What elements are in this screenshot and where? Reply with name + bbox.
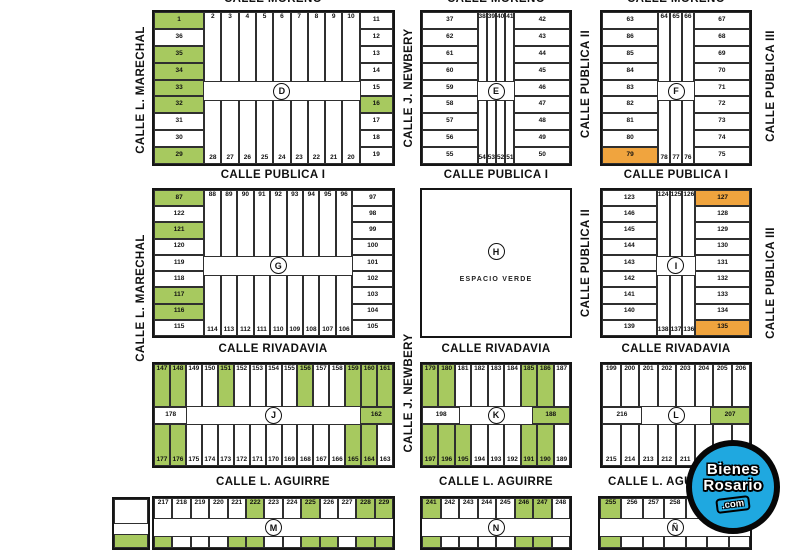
lot-number: 5 [263,14,267,21]
lot-140[interactable]: 140 [602,304,657,320]
lot-61[interactable]: 61 [422,46,478,63]
lot-243[interactable]: 243 [459,498,478,519]
lot-5[interactable]: 5 [256,12,273,82]
lot-78[interactable]: 78 [658,100,670,164]
lot-8[interactable]: 8 [308,12,325,82]
lot-255[interactable]: 255 [600,498,621,519]
lot-165[interactable]: 165 [345,424,361,467]
lot-65[interactable]: 65 [670,12,682,82]
lot-number: 164 [364,457,375,464]
lot-242[interactable]: 242 [441,498,460,519]
lot-parcel[interactable] [338,536,356,548]
lot-156[interactable]: 156 [297,364,313,407]
lot-parcel[interactable] [356,536,374,548]
lot-197[interactable]: 197 [422,424,438,467]
lot-58[interactable]: 58 [422,96,478,113]
lot-32[interactable]: 32 [154,96,204,113]
lot-112[interactable]: 112 [237,275,253,336]
lot-247[interactable]: 247 [533,498,552,519]
lot-parcel[interactable] [320,536,338,548]
lot-37[interactable]: 37 [422,12,478,29]
lot-number: 112 [240,327,251,334]
lot-185[interactable]: 185 [521,364,537,407]
lot-191[interactable]: 191 [521,424,537,467]
lot-11[interactable]: 11 [360,12,393,29]
lot-number: 154 [268,366,279,373]
lot-182[interactable]: 182 [471,364,487,407]
lot-147[interactable]: 147 [154,364,170,407]
lot-30[interactable]: 30 [154,130,204,147]
lot-92[interactable]: 92 [270,190,286,257]
lot-176[interactable]: 176 [170,424,186,467]
lot-203[interactable]: 203 [676,364,695,407]
lot-106[interactable]: 106 [336,275,352,336]
lot-166[interactable]: 166 [329,424,345,467]
lot-169[interactable]: 169 [282,424,298,467]
lot-21[interactable]: 21 [325,100,342,164]
block-bottom-row: 282726252423222120 [204,100,359,164]
lot-200[interactable]: 200 [621,364,640,407]
lot-96[interactable]: 96 [336,190,352,257]
lot-number: 110 [273,327,284,334]
lot-39[interactable]: 39 [487,12,496,82]
lot-128[interactable]: 128 [695,206,750,222]
lot-number: 186 [540,366,551,373]
lot-parcel[interactable] [621,536,642,548]
lot-115[interactable]: 115 [154,320,204,336]
lot-257[interactable]: 257 [643,498,664,519]
lot-number: 160 [364,366,375,373]
lot-31[interactable]: 31 [154,113,204,130]
lot-40[interactable]: 40 [496,12,505,82]
lot-parcel[interactable] [686,536,707,548]
lot-45[interactable]: 45 [514,63,570,80]
lot-114[interactable]: 114 [204,275,220,336]
lot-145[interactable]: 145 [602,222,657,238]
lot-parcel[interactable] [478,536,497,548]
lot-116[interactable]: 116 [154,304,204,320]
lot-parcel[interactable] [707,536,728,548]
lot-124[interactable]: 124 [657,190,670,257]
lot-12[interactable]: 12 [360,29,393,46]
lot-56[interactable]: 56 [422,130,478,147]
lot-198[interactable]: 198 [422,407,460,424]
lot-parcel[interactable] [664,536,685,548]
lot-244[interactable]: 244 [478,498,497,519]
lot-67[interactable]: 67 [694,12,750,29]
lot-10[interactable]: 10 [342,12,359,82]
lot-129[interactable]: 129 [695,222,750,238]
lot-25[interactable]: 25 [256,100,273,164]
lot-199[interactable]: 199 [602,364,621,407]
lot-196[interactable]: 196 [438,424,454,467]
lot-parcel[interactable] [422,536,441,548]
lot-4[interactable]: 4 [239,12,256,82]
lot-35[interactable]: 35 [154,46,204,63]
lot-71[interactable]: 71 [694,80,750,97]
lot-206[interactable]: 206 [732,364,751,407]
lot-parcel[interactable] [228,536,246,548]
lot-195[interactable]: 195 [455,424,471,467]
lot-123[interactable]: 123 [602,190,657,206]
lot-parcel[interactable] [600,536,621,548]
lot-number: 214 [624,457,635,464]
lot-157[interactable]: 157 [313,364,329,407]
lot-186[interactable]: 186 [537,364,553,407]
lot-111[interactable]: 111 [254,275,270,336]
lot-179[interactable]: 179 [422,364,438,407]
lot-76[interactable]: 76 [682,100,694,164]
lot-248[interactable]: 248 [552,498,571,519]
lot-number: 121 [174,227,185,234]
lot-parcel[interactable] [114,499,148,524]
lot-83[interactable]: 83 [602,80,658,97]
lot-215[interactable]: 215 [602,424,621,467]
lot-135[interactable]: 135 [695,320,750,336]
lot-parcel[interactable] [154,536,172,548]
lot-223[interactable]: 223 [264,498,282,519]
lot-parcel[interactable] [209,536,227,548]
lot-189[interactable]: 189 [554,424,570,467]
lot-113[interactable]: 113 [221,275,237,336]
lot-29[interactable]: 29 [154,147,204,164]
lot-102[interactable]: 102 [352,271,393,287]
lot-125[interactable]: 125 [670,190,683,257]
lot-parcel[interactable] [191,536,209,548]
lot-143[interactable]: 143 [602,255,657,271]
lot-24[interactable]: 24 [273,100,290,164]
lot-63[interactable]: 63 [602,12,658,29]
lot-94[interactable]: 94 [303,190,319,257]
lot-number: 124 [658,192,669,199]
lot-28[interactable]: 28 [204,100,221,164]
lot-216[interactable]: 216 [602,407,642,424]
lot-6[interactable]: 6 [273,12,290,82]
lot-221[interactable]: 221 [228,498,246,519]
lot-204[interactable]: 204 [695,364,714,407]
lot-217[interactable]: 217 [154,498,172,519]
lot-2[interactable]: 2 [204,12,221,82]
lot-159[interactable]: 159 [345,364,361,407]
lot-108[interactable]: 108 [303,275,319,336]
lot-93[interactable]: 93 [287,190,303,257]
lot-44[interactable]: 44 [514,46,570,63]
lot-105[interactable]: 105 [352,320,393,336]
lot-parcel[interactable] [496,536,515,548]
lot-parcel[interactable] [114,534,148,548]
lot-118[interactable]: 118 [154,271,204,287]
lot-142[interactable]: 142 [602,271,657,287]
lot-121[interactable]: 121 [154,222,204,238]
lot-207[interactable]: 207 [710,407,750,424]
lot-171[interactable]: 171 [250,424,266,467]
lot-127[interactable]: 127 [695,190,750,206]
lot-95[interactable]: 95 [319,190,335,257]
lot-13[interactable]: 13 [360,46,393,63]
lot-178[interactable]: 178 [154,407,187,424]
lot-84[interactable]: 84 [602,63,658,80]
lot-62[interactable]: 62 [422,29,478,46]
lot-154[interactable]: 154 [266,364,282,407]
lot-122[interactable]: 122 [154,206,204,222]
lot-137[interactable]: 137 [670,275,683,336]
lot-parcel[interactable] [283,536,301,548]
lot-74[interactable]: 74 [694,130,750,147]
lot-164[interactable]: 164 [361,424,377,467]
lot-194[interactable]: 194 [471,424,487,467]
lot-parcel[interactable] [301,536,319,548]
lot-219[interactable]: 219 [191,498,209,519]
lot-141[interactable]: 141 [602,287,657,303]
lot-number: 20 [347,155,354,162]
lot-parcel[interactable] [264,536,282,548]
lot-88[interactable]: 88 [204,190,220,257]
lot-192[interactable]: 192 [504,424,520,467]
lot-59[interactable]: 59 [422,80,478,97]
lot-152[interactable]: 152 [234,364,250,407]
lot-number: 123 [624,195,635,202]
lot-parcel[interactable] [515,536,534,548]
lot-172[interactable]: 172 [234,424,250,467]
lot-23[interactable]: 23 [291,100,308,164]
lot-82[interactable]: 82 [602,96,658,113]
lot-64[interactable]: 64 [658,12,670,82]
lot-7[interactable]: 7 [291,12,308,82]
lot-51[interactable]: 51 [505,100,514,164]
lot-99[interactable]: 99 [352,222,393,238]
lot-150[interactable]: 150 [202,364,218,407]
lot-3[interactable]: 3 [221,12,238,82]
lot-148[interactable]: 148 [170,364,186,407]
lot-14[interactable]: 14 [360,63,393,80]
lot-131[interactable]: 131 [695,255,750,271]
lot-155[interactable]: 155 [282,364,298,407]
lot-151[interactable]: 151 [218,364,234,407]
lot-86[interactable]: 86 [602,29,658,46]
lot-144[interactable]: 144 [602,239,657,255]
lot-number: 204 [698,366,709,373]
lot-89[interactable]: 89 [221,190,237,257]
lot-81[interactable]: 81 [602,113,658,130]
lot-19[interactable]: 19 [360,147,393,164]
lot-227[interactable]: 227 [338,498,356,519]
lot-55[interactable]: 55 [422,147,478,164]
lot-149[interactable]: 149 [186,364,202,407]
lot-number: 105 [367,324,378,331]
lot-69[interactable]: 69 [694,46,750,63]
lot-number: 42 [539,17,546,24]
lot-188[interactable]: 188 [532,407,570,424]
lot-226[interactable]: 226 [320,498,338,519]
lot-109[interactable]: 109 [287,275,303,336]
lot-79[interactable]: 79 [602,147,658,164]
street-label: CALLE L. MARECHAL [135,234,147,362]
lot-97[interactable]: 97 [352,190,393,206]
lot-161[interactable]: 161 [377,364,393,407]
lot-202[interactable]: 202 [658,364,677,407]
lot-90[interactable]: 90 [237,190,253,257]
lot-33[interactable]: 33 [154,80,204,97]
lot-213[interactable]: 213 [639,424,658,467]
lot-201[interactable]: 201 [639,364,658,407]
lot-256[interactable]: 256 [621,498,642,519]
lot-170[interactable]: 170 [266,424,282,467]
lot-126[interactable]: 126 [682,190,695,257]
lot-22[interactable]: 22 [308,100,325,164]
lot-77[interactable]: 77 [670,100,682,164]
lot-120[interactable]: 120 [154,239,204,255]
lot-70[interactable]: 70 [694,63,750,80]
block-M: 217218219220221222223224225226227228229M [152,496,395,550]
lot-119[interactable]: 119 [154,255,204,271]
lot-211[interactable]: 211 [676,424,695,467]
lot-parcel[interactable] [533,536,552,548]
lot-174[interactable]: 174 [202,424,218,467]
lot-number: 10 [347,14,354,21]
lot-41[interactable]: 41 [505,12,514,82]
lot-parcel[interactable] [459,536,478,548]
lot-1[interactable]: 1 [154,12,204,29]
lot-73[interactable]: 73 [694,113,750,130]
lot-133[interactable]: 133 [695,287,750,303]
lot-91[interactable]: 91 [254,190,270,257]
lot-130[interactable]: 130 [695,239,750,255]
lot-18[interactable]: 18 [360,130,393,147]
lot-98[interactable]: 98 [352,206,393,222]
lot-number: 213 [643,457,654,464]
lot-146[interactable]: 146 [602,206,657,222]
lot-60[interactable]: 60 [422,63,478,80]
lot-104[interactable]: 104 [352,304,393,320]
lot-number: 103 [367,292,378,299]
bienesrosario-logo: Bienes Rosario .com [686,440,780,534]
lot-193[interactable]: 193 [488,424,504,467]
lot-162[interactable]: 162 [360,407,393,424]
lot-181[interactable]: 181 [455,364,471,407]
lot-number: 257 [648,500,659,507]
lot-163[interactable]: 163 [377,424,393,467]
lot-15[interactable]: 15 [360,80,393,97]
lot-245[interactable]: 245 [496,498,515,519]
lot-parcel[interactable] [643,536,664,548]
lot-183[interactable]: 183 [488,364,504,407]
lot-168[interactable]: 168 [297,424,313,467]
lot-225[interactable]: 225 [301,498,319,519]
lot-87[interactable]: 87 [154,190,204,206]
lot-190[interactable]: 190 [537,424,553,467]
lot-246[interactable]: 246 [515,498,534,519]
lot-parcel[interactable] [441,536,460,548]
lot-43[interactable]: 43 [514,29,570,46]
lot-49[interactable]: 49 [514,130,570,147]
lot-number: 50 [539,152,546,159]
lot-107[interactable]: 107 [319,275,335,336]
lot-175[interactable]: 175 [186,424,202,467]
lot-parcel[interactable] [552,536,571,548]
lot-parcel[interactable] [172,536,190,548]
lot-number: 90 [242,192,249,199]
lot-36[interactable]: 36 [154,29,204,46]
lot-20[interactable]: 20 [342,100,359,164]
lot-214[interactable]: 214 [621,424,640,467]
lot-52[interactable]: 52 [496,100,505,164]
lot-54[interactable]: 54 [478,100,487,164]
lot-187[interactable]: 187 [554,364,570,407]
lot-228[interactable]: 228 [356,498,374,519]
lot-42[interactable]: 42 [514,12,570,29]
lot-184[interactable]: 184 [504,364,520,407]
lot-180[interactable]: 180 [438,364,454,407]
lot-224[interactable]: 224 [283,498,301,519]
lot-66[interactable]: 66 [682,12,694,82]
lot-26[interactable]: 26 [239,100,256,164]
lot-160[interactable]: 160 [361,364,377,407]
lot-80[interactable]: 80 [602,130,658,147]
lot-parcel[interactable] [729,536,750,548]
lot-16[interactable]: 16 [360,96,393,113]
lot-222[interactable]: 222 [246,498,264,519]
block-J: 1471481491501511521531541551561571581591… [152,362,395,468]
lot-167[interactable]: 167 [313,424,329,467]
lot-72[interactable]: 72 [694,96,750,113]
lot-134[interactable]: 134 [695,304,750,320]
lot-9[interactable]: 9 [325,12,342,82]
lot-50[interactable]: 50 [514,147,570,164]
lot-number: 8 [315,14,319,21]
lot-139[interactable]: 139 [602,320,657,336]
lot-101[interactable]: 101 [352,255,393,271]
lot-218[interactable]: 218 [172,498,190,519]
lot-number: 111 [257,327,267,334]
lot-110[interactable]: 110 [270,275,286,336]
lot-85[interactable]: 85 [602,46,658,63]
lot-number: 21 [330,155,337,162]
lot-177[interactable]: 177 [154,424,170,467]
lot-number: 12 [373,34,380,41]
lot-17[interactable]: 17 [360,113,393,130]
lot-136[interactable]: 136 [682,275,695,336]
lot-117[interactable]: 117 [154,287,204,303]
lot-47[interactable]: 47 [514,96,570,113]
lot-34[interactable]: 34 [154,63,204,80]
lot-48[interactable]: 48 [514,113,570,130]
lot-173[interactable]: 173 [218,424,234,467]
lot-220[interactable]: 220 [209,498,227,519]
lot-212[interactable]: 212 [658,424,677,467]
lot-46[interactable]: 46 [514,80,570,97]
lot-38[interactable]: 38 [478,12,487,82]
lot-241[interactable]: 241 [422,498,441,519]
block-middle: 178J162 [154,407,393,424]
street-label: CALLE MORENO [447,0,545,5]
lot-153[interactable]: 153 [250,364,266,407]
lot-53[interactable]: 53 [487,100,496,164]
lot-138[interactable]: 138 [657,275,670,336]
lot-205[interactable]: 205 [713,364,732,407]
lot-75[interactable]: 75 [694,147,750,164]
lot-229[interactable]: 229 [375,498,393,519]
lot-parcel[interactable] [375,536,393,548]
lot-158[interactable]: 158 [329,364,345,407]
lot-258[interactable]: 258 [664,498,685,519]
lot-132[interactable]: 132 [695,271,750,287]
lot-57[interactable]: 57 [422,113,478,130]
lot-68[interactable]: 68 [694,29,750,46]
lot-100[interactable]: 100 [352,239,393,255]
lot-103[interactable]: 103 [352,287,393,303]
lot-parcel[interactable] [246,536,264,548]
lot-27[interactable]: 27 [221,100,238,164]
